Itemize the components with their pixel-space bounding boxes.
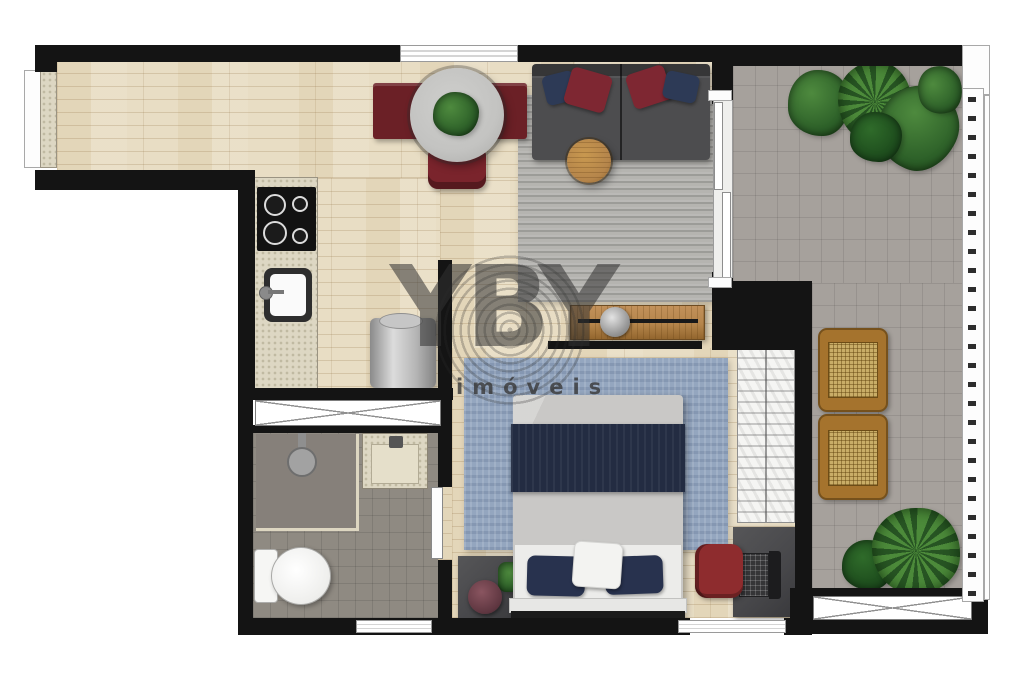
wall-bedroom-right <box>795 348 812 618</box>
vanity-faucet-icon <box>389 436 403 448</box>
toilet-bowl <box>271 547 331 605</box>
railing-outer-edge <box>984 95 990 600</box>
shower-head-icon <box>287 447 317 477</box>
laptop-screen <box>769 551 781 599</box>
burner-icon <box>263 221 287 245</box>
coffee-table <box>567 139 611 183</box>
wall-bedroom-bottom <box>440 618 690 635</box>
railing-balusters <box>968 94 976 596</box>
washing-machine-lid <box>379 313 423 329</box>
lounger-rattan <box>828 342 878 398</box>
bed-pillow-white <box>571 540 623 589</box>
sliding-door-panel <box>714 102 723 190</box>
burner-icon <box>292 228 308 244</box>
door-frame-cap <box>708 90 732 101</box>
wall-corridor-bottom <box>35 170 255 190</box>
desk-chair <box>695 544 743 598</box>
tv-panel <box>548 341 702 349</box>
wall-kitchen-left <box>238 172 255 400</box>
vanity-basin <box>371 444 419 484</box>
wall-left-top <box>35 45 57 72</box>
wall-bath-left <box>238 400 253 635</box>
decor-tray <box>468 580 502 614</box>
wall-bath-right-lower <box>438 560 452 618</box>
wardrobe <box>737 343 795 523</box>
bedroom-window <box>678 620 786 633</box>
wall-bath-top <box>253 425 441 433</box>
kitchen-sink-basin <box>270 274 306 316</box>
planter-box <box>813 596 972 620</box>
door-frame-cap <box>708 277 732 288</box>
faucet-arm <box>268 290 284 294</box>
burner-icon <box>264 194 286 216</box>
entry-threshold <box>40 70 57 168</box>
bathroom-door-leaf <box>431 487 443 559</box>
floor-plan: YBY imóveis <box>0 0 1024 679</box>
top-window <box>400 45 518 62</box>
bathroom-window <box>356 620 432 633</box>
tv-soundbar <box>578 319 698 323</box>
wall-kitchen-bottom <box>238 388 453 400</box>
balcony-plant-icon <box>850 112 902 162</box>
lounger-rattan <box>828 430 878 486</box>
wall-top-left <box>35 45 400 62</box>
wall-top-balcony <box>712 45 962 66</box>
table-plant-icon <box>433 92 479 136</box>
laptop-keyboard <box>739 553 769 597</box>
wall-top-mid <box>518 45 712 62</box>
burner-icon <box>292 196 308 212</box>
balcony-palm-icon <box>872 508 960 594</box>
wall-bedroom-divider <box>438 260 452 400</box>
sliding-door-panel <box>722 192 731 278</box>
storage-cabinet <box>255 400 441 426</box>
wall-corner-block <box>712 281 812 350</box>
bed-blanket <box>511 424 685 492</box>
tv-speaker-icon <box>600 307 630 337</box>
